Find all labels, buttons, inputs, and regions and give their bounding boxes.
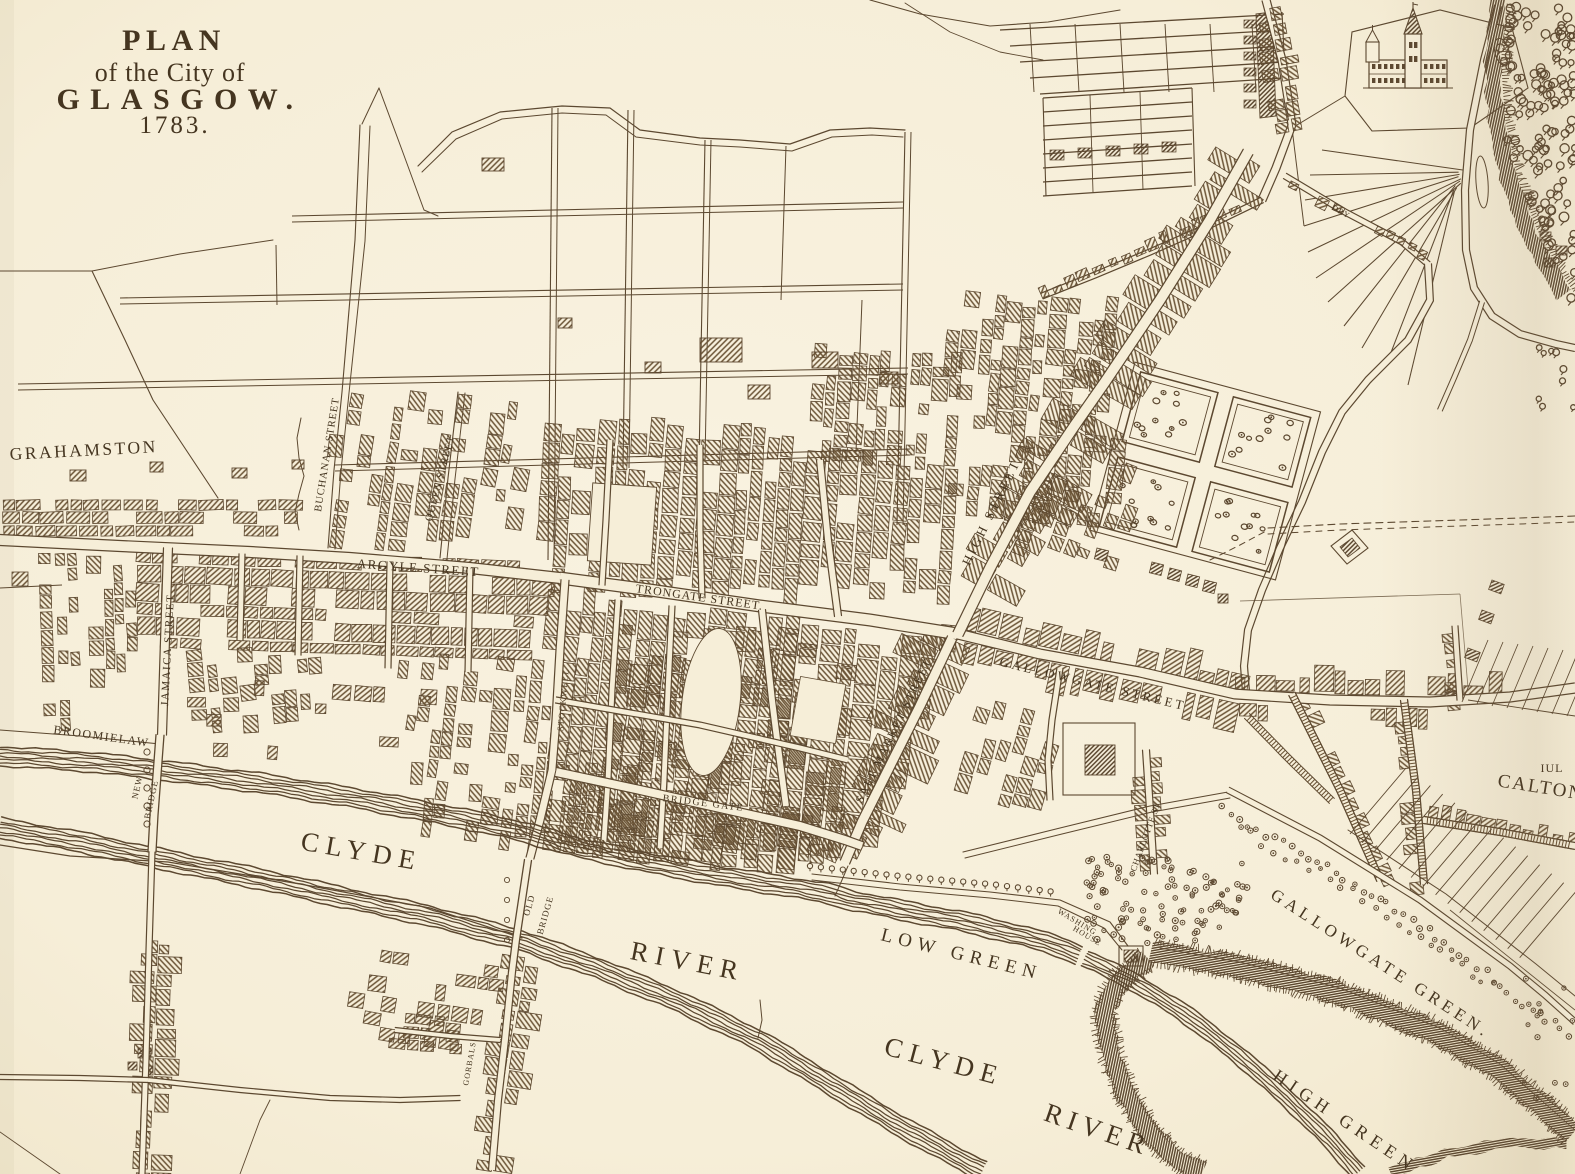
svg-text:PLAN: PLAN (122, 24, 226, 57)
svg-text:1783.: 1783. (139, 112, 210, 139)
